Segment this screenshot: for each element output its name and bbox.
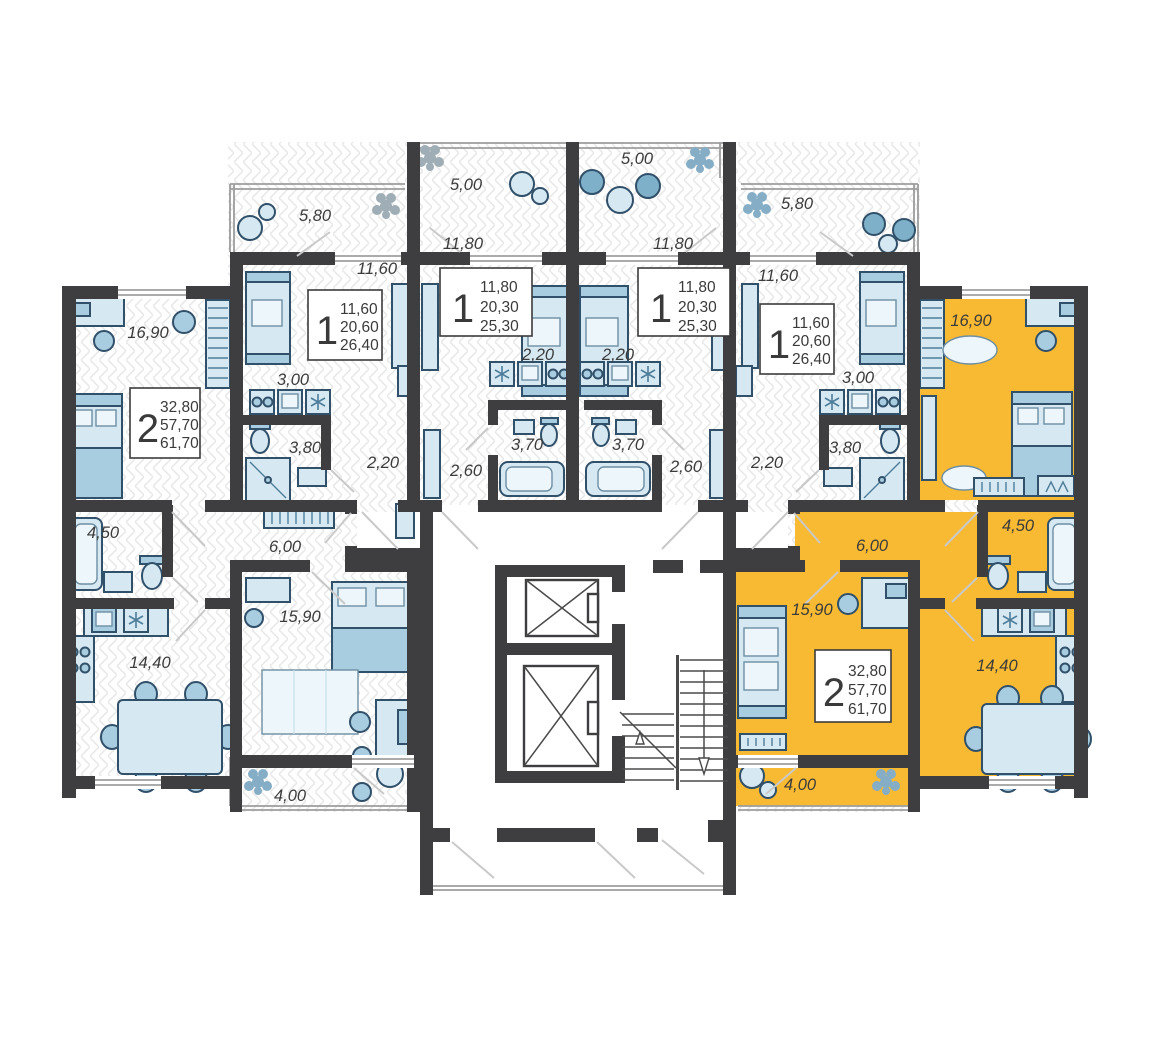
room-label: 4,00	[274, 787, 307, 805]
kitchen-niche-icon	[250, 390, 330, 414]
room-label: 5,80	[299, 207, 332, 225]
sink-icon	[616, 420, 636, 434]
room-label: 4,00	[784, 776, 817, 794]
apartment-info-card-left-1room[interactable]: 1 11,60 20,60 26,40	[308, 290, 382, 360]
dresser-icon	[740, 734, 786, 750]
room-label: 11,80	[443, 235, 484, 253]
room-label: 11,60	[357, 260, 398, 278]
living-area: 32,80	[848, 663, 887, 680]
toilet-icon	[140, 556, 164, 589]
room-label: 3,00	[842, 369, 875, 387]
room-label: 3,80	[289, 439, 322, 457]
kitchen-niche-icon	[580, 362, 660, 386]
elevator-icon	[526, 580, 598, 636]
floor-plan: 16,90 4,50 14,40 15,90 6,00 4,00 5,80 11…	[0, 0, 1150, 1040]
cabinet-icon	[736, 366, 752, 396]
rooms-count: 2	[137, 407, 159, 451]
rooms-count: 1	[452, 287, 474, 331]
living-area: 11,60	[792, 315, 830, 332]
room-label: 6,00	[269, 538, 302, 556]
room-label: 6,00	[856, 537, 889, 555]
room-label: 5,00	[450, 176, 483, 194]
floor-plan-canvas: 16,90 4,50 14,40 15,90 6,00 4,00 5,80 11…	[0, 0, 1150, 1040]
rooms-count: 2	[823, 671, 845, 715]
total-area: 26,40	[792, 351, 831, 368]
room-label: 4,50	[1002, 517, 1035, 535]
coat-rack-icon	[974, 476, 1074, 496]
piano-icon	[920, 300, 944, 388]
apartment-info-card-right-1room[interactable]: 1 11,60 20,60 26,40	[760, 304, 834, 374]
elevator-icon	[524, 666, 598, 766]
room-label: 2,60	[669, 458, 703, 476]
room-label: 3,00	[277, 371, 310, 389]
toilet-icon	[541, 418, 558, 446]
total-area: 25,30	[480, 318, 519, 335]
room-label: 2,20	[521, 346, 555, 364]
room-label: 3,70	[612, 436, 645, 454]
sink-icon	[824, 468, 852, 486]
apartment-area: 20,30	[678, 299, 717, 316]
bathtub-icon	[500, 462, 564, 496]
total-area: 61,70	[160, 435, 199, 452]
rooms-count: 1	[650, 287, 672, 331]
sink-icon	[298, 468, 326, 486]
wardrobe-icon	[742, 284, 758, 368]
toilet-icon	[880, 422, 900, 453]
room-label: 11,60	[758, 267, 799, 285]
room-label: 16,90	[127, 324, 169, 342]
shower-icon	[246, 458, 290, 502]
living-area: 11,60	[340, 301, 378, 318]
total-area: 25,30	[678, 318, 717, 335]
rooms-count: 1	[316, 309, 338, 353]
apartment-area: 57,70	[848, 682, 887, 699]
total-area: 26,40	[340, 337, 379, 354]
apartment-info-card-left-2room[interactable]: 2 32,80 57,70 61,70	[130, 388, 200, 458]
apartment-area: 57,70	[160, 417, 199, 434]
living-area: 11,80	[480, 279, 518, 296]
piano-icon	[206, 300, 230, 388]
sink-icon	[514, 420, 534, 434]
wardrobe-icon	[392, 284, 408, 368]
sofa-icon	[860, 272, 904, 364]
room-label: 2,60	[449, 462, 483, 480]
toilet-icon	[250, 422, 270, 453]
sink-icon	[1018, 572, 1046, 592]
room-label: 2,20	[366, 454, 400, 472]
room-label: 11,80	[653, 235, 694, 253]
bed-icon	[332, 582, 412, 672]
apartment-info-card-center-left-1room[interactable]: 1 11,80 20,30 25,30	[440, 268, 532, 336]
apartment-area: 20,60	[340, 319, 379, 336]
apartment-area: 20,30	[480, 299, 519, 316]
kitchen-niche-icon	[490, 362, 570, 386]
room-label: 5,00	[621, 150, 654, 168]
toilet-icon	[592, 418, 609, 446]
apartment-area: 20,60	[792, 333, 831, 350]
apartment-info-card-center-right-1room[interactable]: 1 11,80 20,30 25,30	[638, 268, 730, 336]
rooms-count: 1	[768, 323, 790, 367]
wardrobe-icon	[922, 396, 936, 480]
room-label: 14,40	[976, 657, 1018, 675]
rug-icon	[262, 670, 358, 734]
room-label: 4,50	[87, 524, 120, 542]
sofa-icon	[246, 272, 290, 364]
toilet-icon	[986, 556, 1010, 589]
rug-icon	[943, 336, 997, 364]
room-label: 15,90	[279, 608, 321, 626]
bathtub-icon	[586, 462, 650, 496]
sink-icon	[104, 572, 132, 592]
total-area: 61,70	[848, 701, 887, 718]
shower-icon	[860, 458, 904, 502]
wardrobe-icon	[422, 284, 438, 370]
living-area: 11,80	[678, 279, 716, 296]
apartment-info-card-right-2room[interactable]: 2 32,80 57,70 61,70	[815, 650, 891, 722]
room-label: 3,80	[829, 439, 862, 457]
room-label: 14,40	[129, 654, 171, 672]
room-label: 2,20	[601, 346, 635, 364]
room-label: 16,90	[950, 312, 992, 330]
wardrobe-icon	[424, 430, 440, 498]
living-area: 32,80	[160, 399, 199, 416]
room-label: 3,70	[511, 436, 544, 454]
sofa-icon	[738, 606, 786, 718]
room-label: 2,20	[750, 454, 784, 472]
kitchen-niche-icon	[820, 390, 900, 414]
room-label: 5,80	[781, 195, 814, 213]
room-label: 15,90	[791, 601, 833, 619]
table-icon	[173, 311, 195, 333]
